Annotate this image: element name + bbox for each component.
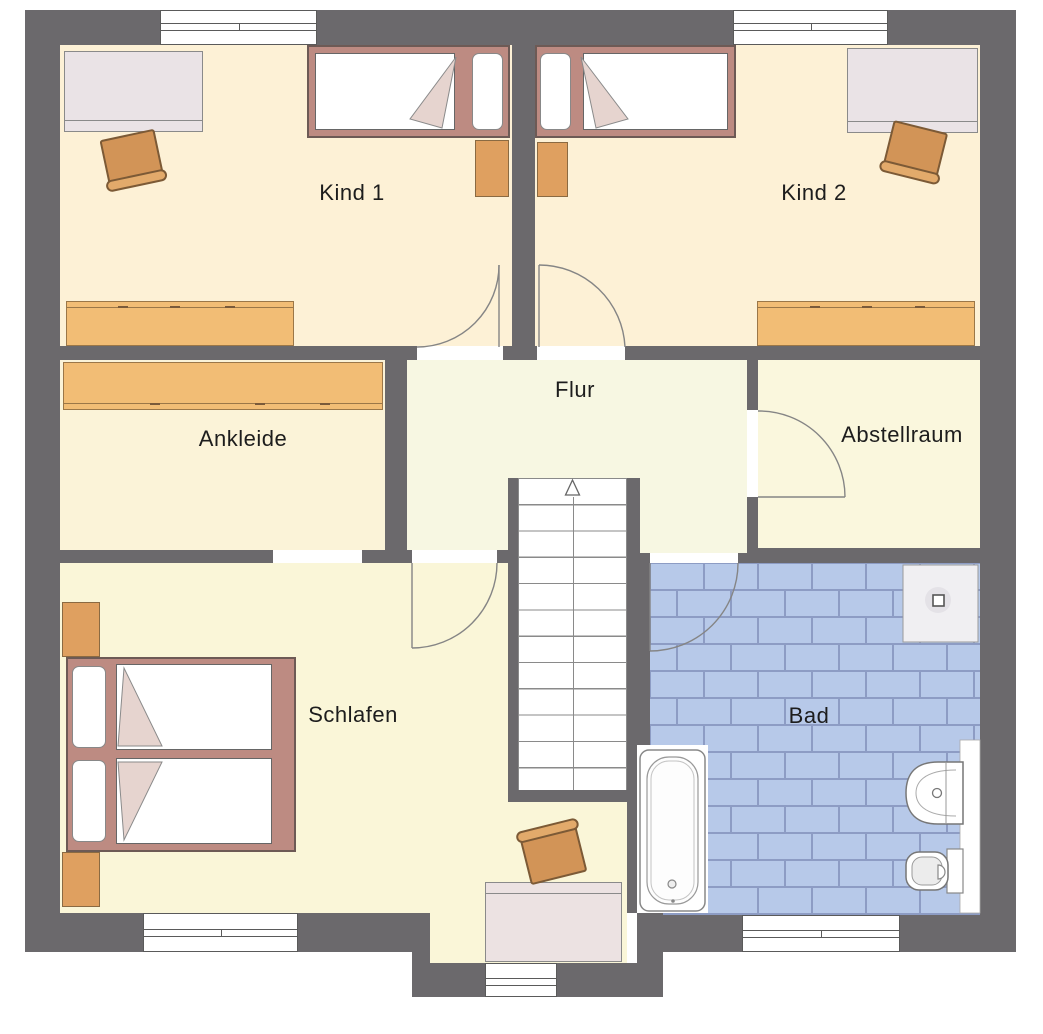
kind1-dresser [66, 301, 294, 346]
kind1-nightstand [475, 140, 509, 197]
kind1-label: Kind 1 [319, 180, 384, 206]
schlafen-mattress-bottom [116, 758, 272, 844]
wall-bad-left [627, 563, 650, 745]
kind2-nightstand [537, 142, 568, 197]
kind1-desk-front-edge [65, 120, 202, 128]
schlafen-mattress-top [116, 664, 272, 750]
wall-schlafen-top-b [362, 550, 412, 563]
abstellraum-label: Abstellraum [841, 422, 963, 448]
wall-abstell-bottom [747, 548, 980, 563]
window-kind2-divider [811, 23, 812, 31]
wall-abstell-left-lower [747, 497, 758, 553]
schlafen-label: Schlafen [308, 702, 398, 728]
window-bad [742, 915, 900, 952]
wall-between-kind-rooms [512, 45, 535, 358]
wall-schlafen-top-a [60, 550, 273, 563]
kind1-dresser-edge [67, 307, 293, 308]
window-kind1-divider [239, 23, 240, 31]
window-bay [485, 963, 557, 997]
kind2-door-opening [537, 346, 625, 360]
kind1-desk [64, 51, 203, 132]
window-schlafen-divider [221, 929, 222, 937]
kind1-bed-mattress [315, 53, 455, 130]
kind2-label: Kind 2 [781, 180, 846, 206]
kind2-desk [847, 48, 978, 133]
abstellraum-floor [758, 360, 980, 548]
ankleide-wardrobe [63, 362, 383, 410]
window-kind1 [160, 10, 317, 45]
window-schlafen [143, 913, 298, 952]
window-bay-glazing [486, 978, 556, 986]
wall-stair-bottom [508, 790, 640, 802]
staircase [518, 478, 627, 793]
wall-abstell-left-upper [747, 360, 758, 410]
window-kind2 [733, 10, 888, 45]
flur-label: Flur [555, 377, 595, 403]
kind2-bed-mattress [583, 53, 728, 130]
bad-tiled-floor [650, 563, 980, 915]
bad-door-opening [650, 553, 738, 563]
window-bad-divider [821, 930, 822, 938]
ankleide-schlafen-passage [273, 550, 362, 563]
kind1-bed-pillow [472, 53, 503, 130]
bath-tiles [650, 563, 980, 915]
kind2-bed-pillow [540, 53, 571, 130]
kind1-chair [99, 129, 164, 190]
schlafen-pillow-top [72, 666, 106, 748]
bad-label: Bad [789, 703, 830, 729]
staircase-center-line [573, 497, 575, 792]
schlafen-desk-front-edge [486, 886, 621, 894]
wall-left [25, 10, 60, 952]
ankleide-label: Ankleide [199, 426, 287, 452]
ankleide-wardrobe-edge [64, 403, 382, 404]
floor-plan: Kind 1 Kind 2 Flur Ankleide Abstellraum … [0, 0, 1043, 1034]
kind1-door-opening [417, 346, 503, 360]
wall-right [980, 10, 1016, 952]
abstellraum-door-opening [747, 410, 758, 497]
wall-stair-left [508, 478, 518, 802]
schlafen-pillow-bottom [72, 760, 106, 842]
wall-mid-band [60, 346, 980, 360]
wall-ankleide-right [385, 360, 407, 553]
schlafen-nightstand-bottom [62, 852, 100, 907]
kind2-dresser [757, 301, 975, 346]
schlafen-desk [485, 882, 622, 962]
kind2-dresser-edge [758, 307, 974, 308]
schlafen-nightstand-top [62, 602, 100, 657]
schlafen-door-opening [412, 550, 497, 563]
